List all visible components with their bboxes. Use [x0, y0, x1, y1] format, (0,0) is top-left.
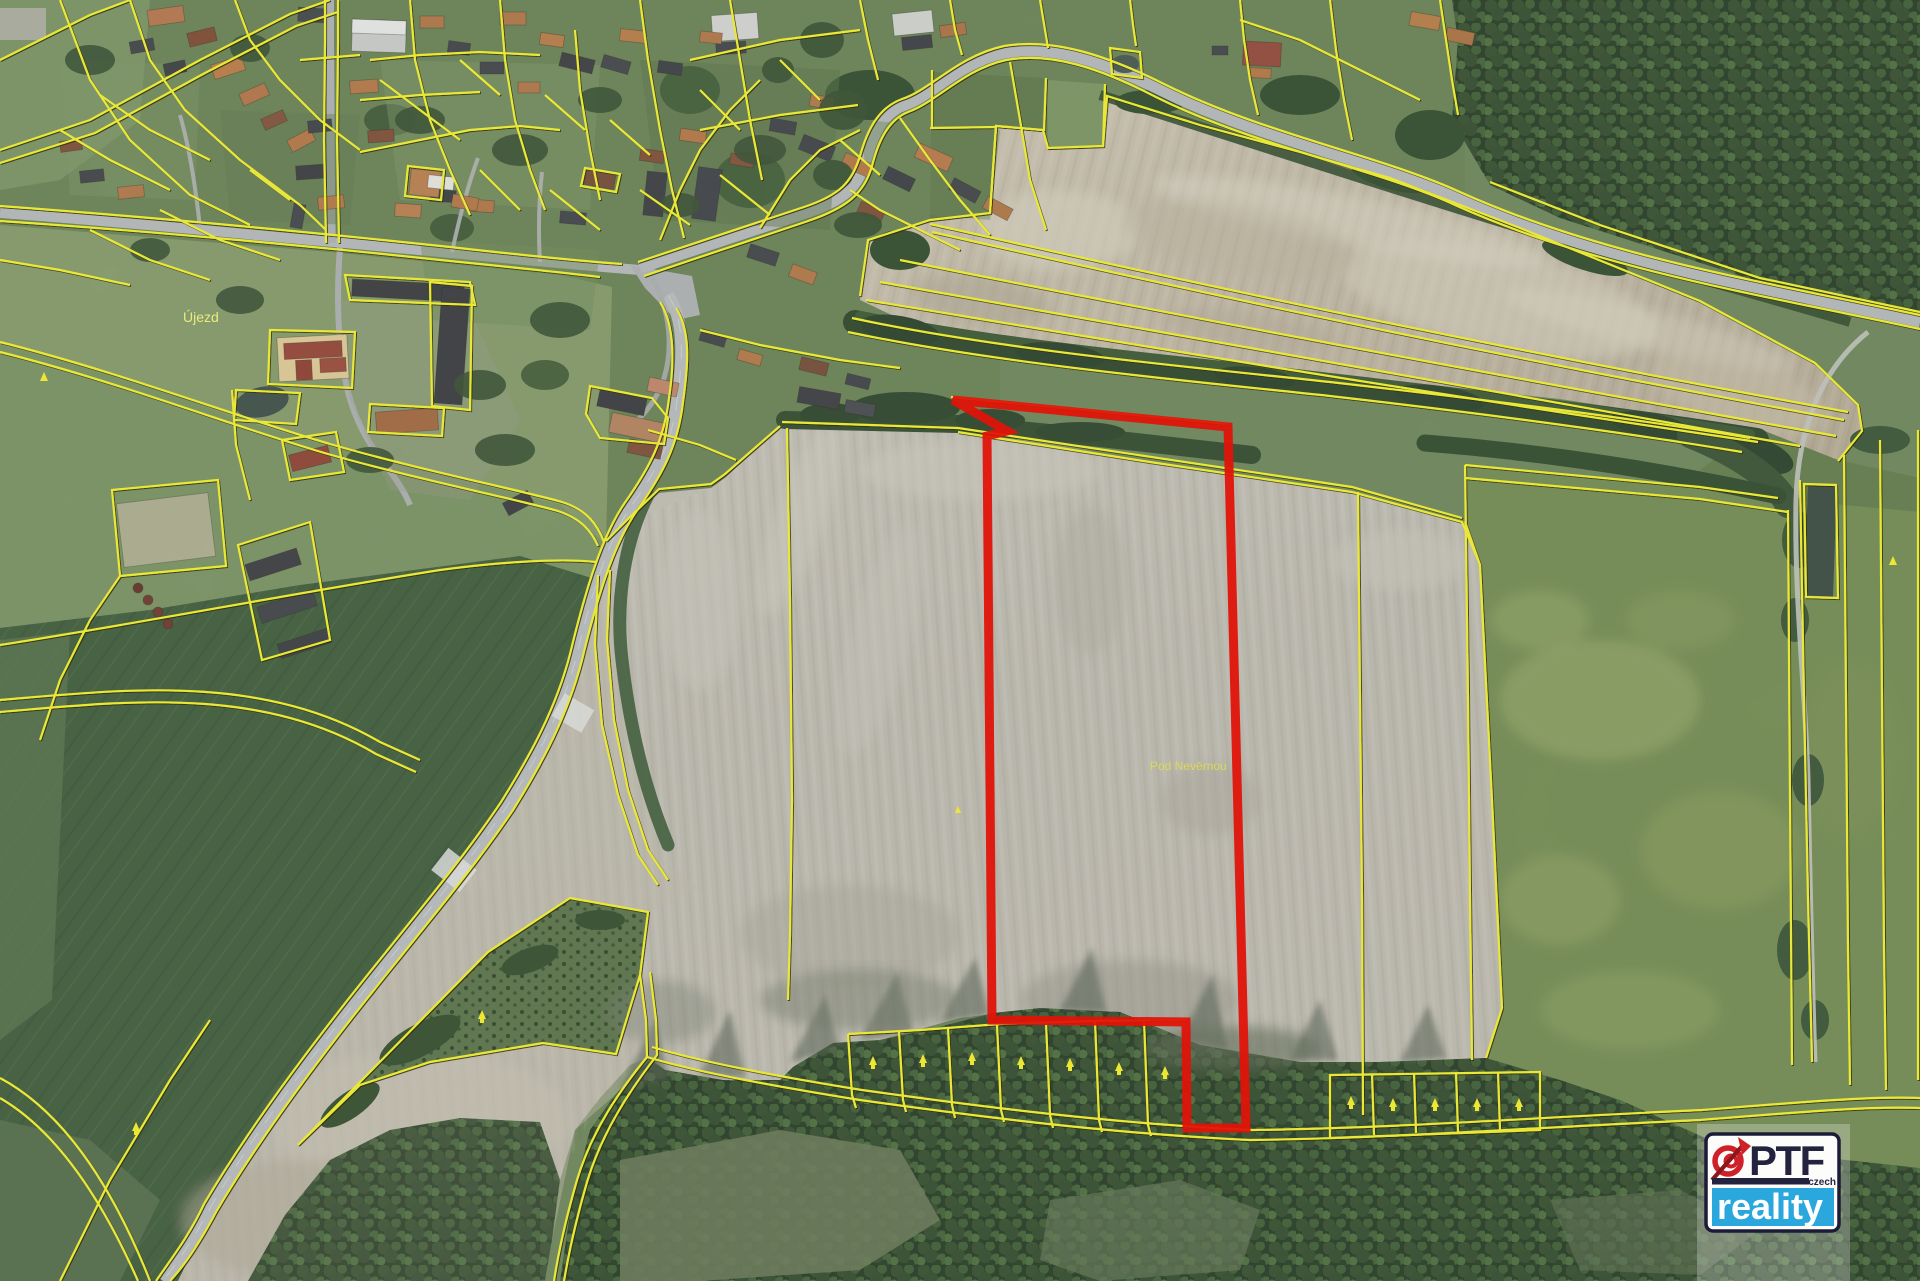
svg-text:reality: reality — [1717, 1186, 1823, 1227]
svg-text:Pod Nevěrnou: Pod Nevěrnou — [1150, 759, 1227, 773]
svg-text:Újezd: Újezd — [183, 309, 219, 325]
